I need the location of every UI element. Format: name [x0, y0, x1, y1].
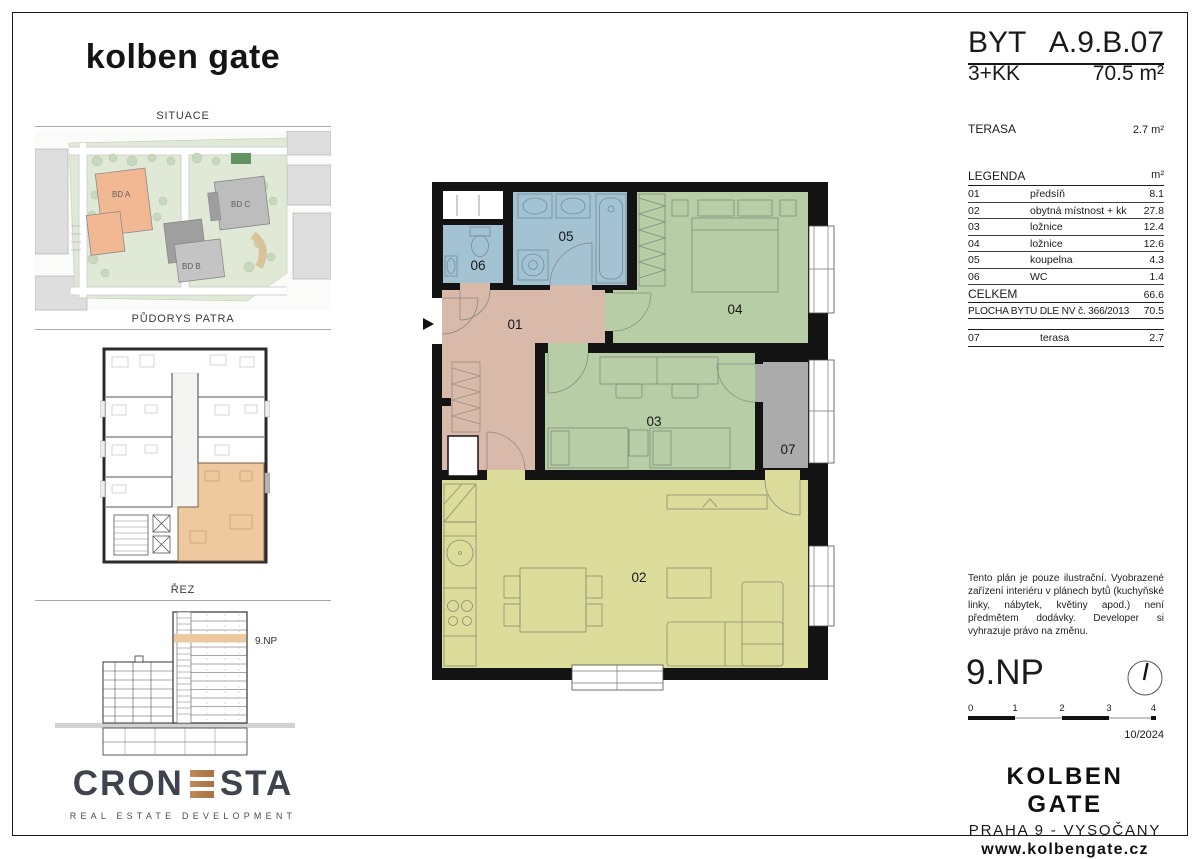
section-highlight-floor: [174, 634, 246, 643]
floor-label: 9.NP: [966, 653, 1044, 693]
cronesta-e-icon: [190, 770, 214, 798]
project-name: KOLBEN GATE: [966, 763, 1164, 819]
building-c-label: BD C: [231, 200, 250, 209]
project-website: www.kolbengate.cz: [966, 841, 1164, 859]
cronesta-text-right: STA: [220, 764, 293, 804]
section-floor-label: 9.NP: [255, 636, 278, 647]
room-label-05: 05: [558, 229, 573, 244]
disposition: 3+KK: [968, 62, 1020, 86]
floorplan-sheet: { "sidebar": { "brand": "kolben gate", "…: [0, 0, 1200, 848]
legend-row: 04 ložnice 12.6: [968, 236, 1164, 253]
shaft-niche: [443, 191, 503, 219]
cronesta-subtitle: REAL ESTATE DEVELOPMENT: [35, 811, 331, 821]
room-label-01: 01: [507, 317, 522, 332]
terasa-label: TERASA: [968, 122, 1016, 136]
terasa-row: TERASA 2.7 m²: [968, 122, 1164, 136]
legend-header: LEGENDA m²: [968, 168, 1164, 186]
legend-unit: m²: [1151, 169, 1164, 183]
north-compass-icon: [1125, 658, 1165, 698]
section-image: 9.NP: [55, 604, 295, 762]
project-location: PRAHA 9 - VYSOČANY: [966, 822, 1164, 839]
room-label-06: 06: [470, 258, 485, 273]
site-plan-image: BD A BD C BD B: [35, 131, 331, 311]
legend-row: 02 obytná místnost + kk 27.8: [968, 203, 1164, 220]
stairs: [114, 515, 148, 555]
shaft: [448, 436, 478, 476]
legend-title: LEGENDA: [968, 169, 1025, 183]
terasa-area: 2.7 m²: [1133, 124, 1164, 136]
project-footer: KOLBEN GATE PRAHA 9 - VYSOČANY www.kolbe…: [966, 763, 1164, 859]
legend-row: 06 WC 1.4: [968, 269, 1164, 286]
title-block: BYT A.9.B.07: [968, 26, 1164, 65]
legend-terrace-row: 07 terasa 2.7: [968, 329, 1164, 347]
building-a-label: BD A: [112, 190, 131, 199]
legend-total-row: CELKEM 66.6: [968, 285, 1164, 303]
rez-title: ŘEZ: [35, 584, 331, 601]
type-row: 3+KK 70.5 m²: [968, 62, 1164, 86]
unit-label: BYT: [968, 26, 1026, 60]
legend-row: 05 koupelna 4.3: [968, 252, 1164, 269]
unit-code: A.9.B.07: [1049, 26, 1164, 60]
room-06-wc: [443, 225, 503, 283]
situace-title: SITUACE: [35, 110, 331, 127]
pudorys-title: PŮDORYS PATRA: [35, 313, 331, 330]
room-label-02: 02: [631, 570, 646, 585]
room-02-living: [442, 480, 808, 668]
cronesta-text-left: CRON: [73, 764, 184, 804]
hedge: [231, 153, 251, 164]
scalebar: [968, 716, 1156, 720]
legend-row: 01 předsíň 8.1: [968, 186, 1164, 203]
legend-table: LEGENDA m² 01 předsíň 8.1 02 obytná míst…: [968, 168, 1164, 347]
legend-row: 03 ložnice 12.4: [968, 219, 1164, 236]
kolben-gate-logo: kolben gate: [35, 38, 331, 77]
room-label-04: 04: [727, 302, 743, 317]
apartment-floorplan: 01 02 03 04 05 06 07: [420, 178, 840, 708]
floor-overview-image: [100, 345, 270, 567]
legend-statutory-row: PLOCHA BYTU DLE NV č. 366/2013 70.5: [968, 303, 1164, 319]
scalebar-labels: 0 1 2 3 4: [968, 703, 1156, 714]
room-label-07: 07: [780, 442, 795, 457]
date: 10/2024: [968, 729, 1164, 741]
room-label-03: 03: [646, 414, 661, 429]
total-area: 70.5 m²: [1093, 62, 1164, 86]
building-b-label: BD B: [182, 262, 201, 271]
disclaimer-text: Tento plán je pouze ilustrační. Vyobraze…: [968, 572, 1164, 638]
cronesta-logo: CRON STA REAL ESTATE DEVELOPMENT: [35, 764, 331, 821]
